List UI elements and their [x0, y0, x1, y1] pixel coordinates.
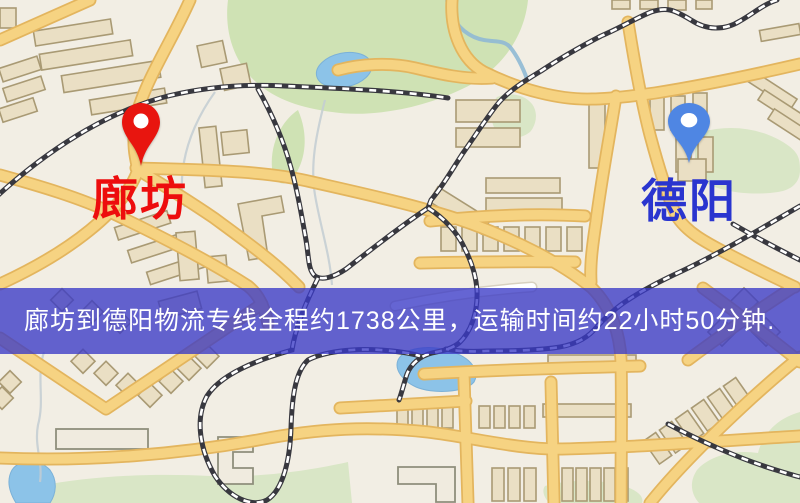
origin-label: 廊坊: [92, 176, 188, 222]
origin-marker[interactable]: [122, 103, 160, 175]
origin-marker-icon[interactable]: [122, 103, 160, 166]
destination-marker-icon[interactable]: [668, 103, 710, 163]
origin-marker-dot: [134, 114, 149, 129]
map-canvas[interactable]: [0, 0, 800, 503]
destination-marker[interactable]: [668, 103, 710, 172]
route-info-banner: 廊坊到德阳物流专线全程约1738公里，运输时间约22小时50分钟.: [0, 288, 800, 354]
route-info-text: 廊坊到德阳物流专线全程约1738公里，运输时间约22小时50分钟.: [0, 288, 800, 354]
destination-marker-dot: [681, 113, 698, 127]
map-viewport: 廊坊 德阳 廊坊到德阳物流专线全程约1738公里，运输时间约22小时50分钟.: [0, 0, 800, 503]
destination-label: 德阳: [641, 178, 737, 224]
